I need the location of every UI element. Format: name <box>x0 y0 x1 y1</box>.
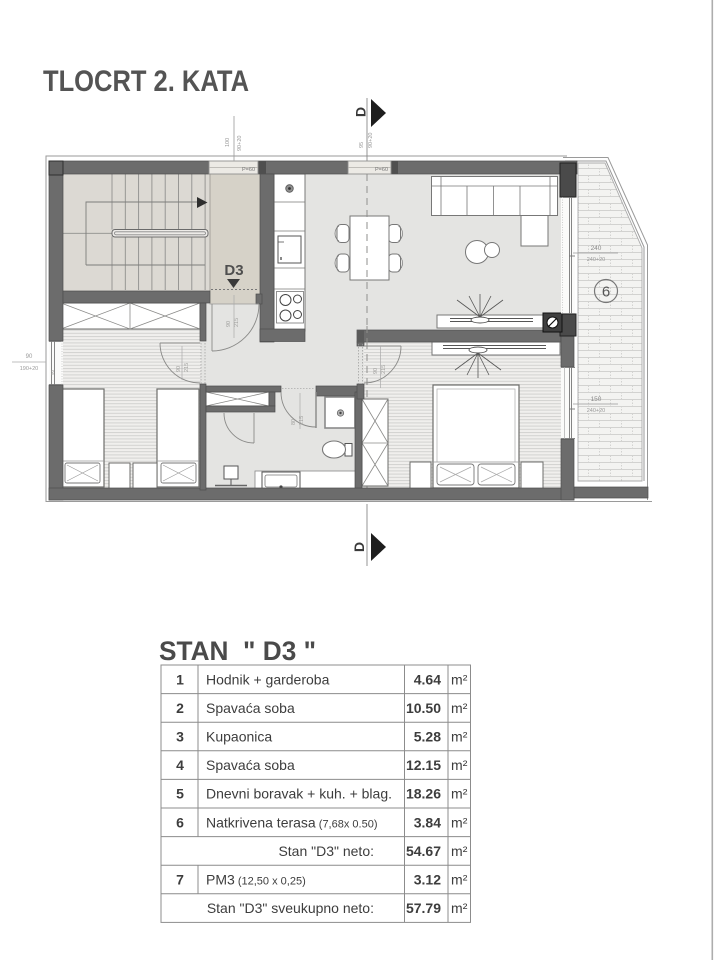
svg-text:215: 215 <box>234 318 240 327</box>
svg-text:m²: m² <box>451 700 468 716</box>
svg-text:m²: m² <box>451 872 468 888</box>
svg-text:12.15: 12.15 <box>406 757 441 773</box>
svg-text:PM3 (12,50 x 0,25): PM3 (12,50 x 0,25) <box>206 872 306 888</box>
svg-text:TLOCRT 2. KATA: TLOCRT 2. KATA <box>43 65 249 98</box>
svg-text:D3: D3 <box>224 262 243 279</box>
svg-text:Spavaća soba: Spavaća soba <box>206 700 295 716</box>
svg-text:Hodnik + garderoba: Hodnik + garderoba <box>206 671 330 687</box>
svg-text:Spavaća soba: Spavaća soba <box>206 757 295 773</box>
svg-text:Stan "D3" neto:: Stan "D3" neto: <box>278 843 374 859</box>
svg-text:P=60: P=60 <box>242 167 255 173</box>
svg-text:D: D <box>351 542 367 552</box>
svg-text:m²: m² <box>451 729 468 745</box>
svg-text:240+20: 240+20 <box>587 408 606 414</box>
svg-text:90: 90 <box>26 354 33 360</box>
svg-text:5.28: 5.28 <box>414 729 441 745</box>
svg-text:7: 7 <box>176 872 184 888</box>
svg-text:m²: m² <box>451 757 468 773</box>
svg-text:18.26: 18.26 <box>406 786 441 802</box>
svg-text:215: 215 <box>299 416 305 425</box>
svg-text:240: 240 <box>591 245 602 252</box>
svg-text:90+20: 90+20 <box>368 133 374 148</box>
svg-text:80: 80 <box>291 419 297 425</box>
svg-text:m²: m² <box>451 671 468 687</box>
svg-text:m²: m² <box>451 900 468 916</box>
svg-text:2: 2 <box>176 700 184 716</box>
svg-text:P=60: P=60 <box>375 167 388 173</box>
svg-text:215: 215 <box>184 363 190 372</box>
svg-text:5: 5 <box>176 786 184 802</box>
svg-text:215: 215 <box>381 365 387 374</box>
svg-text:3: 3 <box>176 729 184 745</box>
svg-text:95: 95 <box>359 142 365 148</box>
svg-text:3.12: 3.12 <box>414 872 441 888</box>
svg-text:3.84: 3.84 <box>414 814 441 830</box>
svg-text:10.50: 10.50 <box>406 700 441 716</box>
svg-text:90: 90 <box>50 369 55 375</box>
svg-text:150: 150 <box>591 396 602 403</box>
svg-text:190+20: 190+20 <box>20 366 39 372</box>
svg-text:90: 90 <box>373 368 379 374</box>
svg-text:4.64: 4.64 <box>414 671 441 687</box>
svg-text:57.79: 57.79 <box>406 900 441 916</box>
svg-text:100: 100 <box>225 138 231 147</box>
svg-text:D: D <box>353 107 369 117</box>
svg-text:54.67: 54.67 <box>406 843 441 859</box>
svg-text:1: 1 <box>176 671 184 687</box>
svg-text:Dnevni boravak + kuh. + blag.: Dnevni boravak + kuh. + blag. <box>206 786 392 802</box>
svg-text:90: 90 <box>226 321 232 327</box>
svg-text:STAN " D3 ": STAN " D3 " <box>159 636 316 666</box>
svg-text:240+20: 240+20 <box>587 257 606 263</box>
svg-text:6: 6 <box>176 814 184 830</box>
svg-text:m²: m² <box>451 814 468 830</box>
svg-text:4: 4 <box>176 757 184 773</box>
svg-text:90+20: 90+20 <box>237 136 243 151</box>
svg-text:m²: m² <box>451 786 468 802</box>
svg-text:Stan "D3" sveukupno neto:: Stan "D3" sveukupno neto: <box>207 900 374 916</box>
svg-text:Natkrivena terasa (7,68x 0.50): Natkrivena terasa (7,68x 0.50) <box>206 814 377 830</box>
svg-text:Kupaonica: Kupaonica <box>206 729 272 745</box>
svg-text:m²: m² <box>451 843 468 859</box>
svg-text:6: 6 <box>602 284 610 301</box>
svg-text:90: 90 <box>176 366 182 372</box>
